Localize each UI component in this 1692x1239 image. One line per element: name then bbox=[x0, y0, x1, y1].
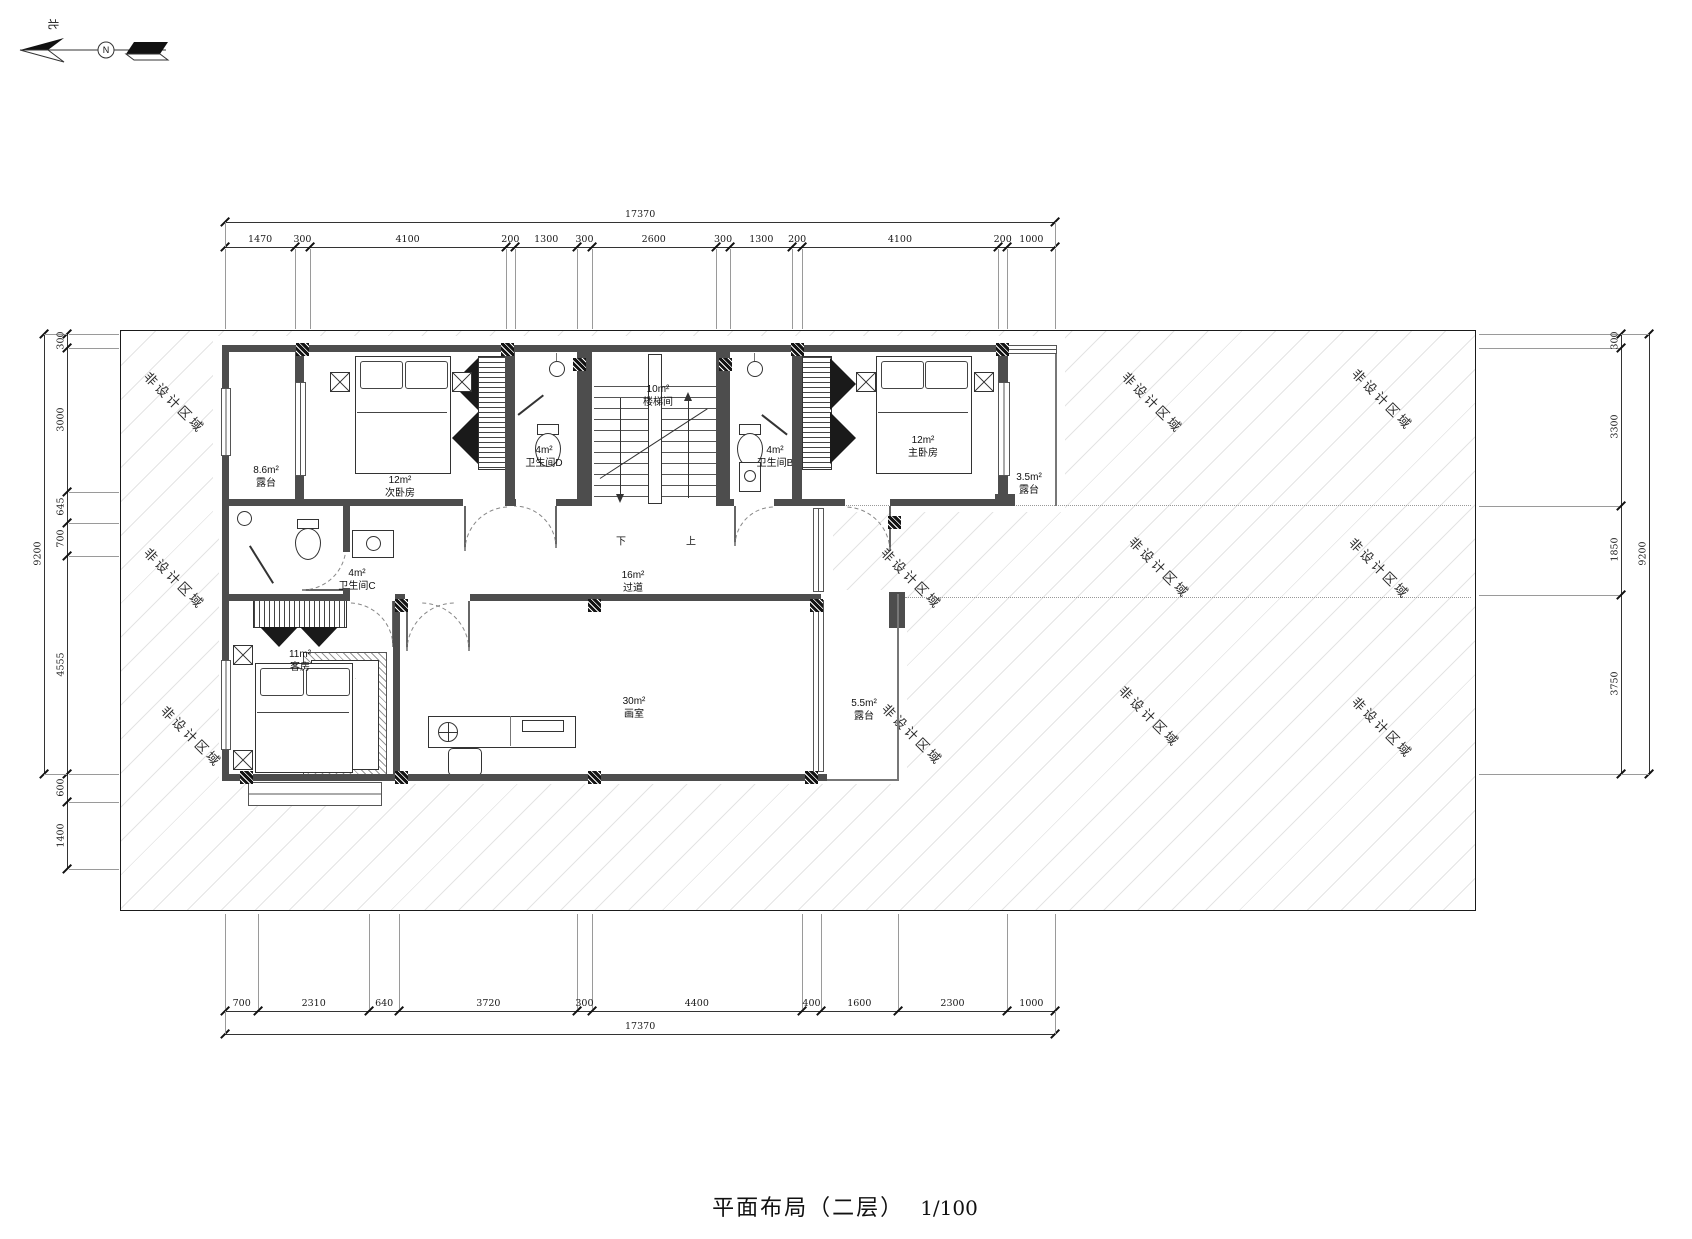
wall bbox=[510, 499, 516, 506]
extension-line bbox=[515, 249, 516, 329]
wall bbox=[716, 499, 734, 506]
room-name: 客房 bbox=[289, 661, 311, 674]
extension-line bbox=[592, 914, 593, 1009]
column-icon bbox=[791, 343, 804, 356]
room-area: 11m² bbox=[289, 648, 311, 661]
extension-line bbox=[258, 914, 259, 1009]
dimension-label: 2310 bbox=[289, 998, 339, 1009]
room-name: 楼梯间 bbox=[643, 396, 673, 409]
window bbox=[998, 382, 1010, 476]
window bbox=[221, 388, 231, 456]
north-arrow-icon: N bbox=[14, 10, 184, 70]
column-icon bbox=[719, 358, 732, 371]
laptop-icon bbox=[522, 720, 564, 732]
north-label: 北 bbox=[46, 19, 62, 30]
pillow bbox=[306, 668, 350, 696]
nightstand-icon bbox=[233, 750, 253, 770]
extension-line bbox=[1479, 506, 1619, 507]
sink-icon bbox=[366, 536, 381, 551]
column-icon bbox=[810, 599, 823, 612]
room-label-guest-room: 11m²客房 bbox=[289, 648, 311, 674]
dimension-label: 4400 bbox=[672, 998, 722, 1009]
faucet-icon bbox=[556, 353, 557, 361]
room-name: 露台 bbox=[1016, 484, 1042, 497]
dimension-line bbox=[225, 1011, 1055, 1012]
dimension-label: 600 bbox=[56, 763, 67, 813]
wardrobe-door-icon bbox=[300, 627, 338, 647]
extension-line bbox=[69, 556, 119, 557]
window bbox=[813, 508, 824, 592]
room-area: 4m² bbox=[525, 444, 562, 457]
room-area: 3.5m² bbox=[1016, 471, 1042, 484]
extension-line bbox=[506, 249, 507, 329]
wall bbox=[556, 499, 592, 506]
extension-line bbox=[225, 1011, 226, 1034]
stair-arrow-line bbox=[688, 398, 689, 498]
extension-line bbox=[69, 869, 119, 870]
column-icon bbox=[588, 771, 601, 784]
dimension-label: 700 bbox=[217, 998, 267, 1009]
extension-line bbox=[1007, 914, 1008, 1009]
extension-line bbox=[1055, 249, 1056, 329]
stair-arrow-up-icon bbox=[684, 392, 692, 401]
wardrobe-door-icon bbox=[830, 412, 856, 464]
wall bbox=[995, 494, 1015, 506]
terrace-edge-line bbox=[827, 779, 899, 781]
room-area: 10m² bbox=[643, 383, 673, 396]
extension-line bbox=[802, 914, 803, 1009]
dimension-line bbox=[225, 247, 1055, 248]
nightstand-icon bbox=[330, 372, 350, 392]
dimension-label: 3000 bbox=[56, 395, 67, 445]
extension-line bbox=[1055, 1011, 1056, 1034]
dimension-label: 300 bbox=[56, 316, 67, 366]
stair-arrow-down-icon bbox=[616, 494, 624, 503]
window bbox=[221, 660, 231, 750]
wardrobe bbox=[802, 356, 832, 470]
window bbox=[248, 782, 382, 806]
room-area: 12m² bbox=[908, 434, 938, 447]
wall bbox=[792, 345, 802, 506]
terrace-edge-line bbox=[897, 594, 899, 781]
dimension-total-label: 17370 bbox=[615, 209, 665, 220]
dimension-total-line bbox=[225, 222, 1055, 223]
column-icon bbox=[395, 599, 408, 612]
extension-line bbox=[1621, 334, 1649, 335]
wall bbox=[890, 499, 1012, 506]
stair-divider bbox=[648, 354, 662, 504]
dimension-label: 4555 bbox=[56, 639, 67, 689]
extension-line bbox=[310, 249, 311, 329]
dimension-label: 1000 bbox=[1006, 998, 1056, 1009]
extension-line bbox=[1479, 595, 1619, 596]
floor-plan-canvas: 北 N bbox=[0, 0, 1692, 1239]
drawing-scale: 1/100 bbox=[920, 1196, 978, 1220]
room-label-bedroom2: 12m²次卧房 bbox=[385, 474, 415, 500]
room-label-bath-d: 4m²卫生间D bbox=[525, 444, 562, 470]
extension-line bbox=[225, 914, 226, 1009]
dimension-label: 4100 bbox=[875, 234, 925, 245]
desk-lamp-icon bbox=[438, 722, 458, 742]
dimension-label: 3720 bbox=[463, 998, 513, 1009]
chair bbox=[448, 748, 482, 776]
wall bbox=[222, 594, 350, 601]
sink-icon bbox=[747, 361, 763, 377]
dimension-label: 1400 bbox=[56, 810, 67, 860]
room-label-studio: 30m²画室 bbox=[623, 695, 646, 721]
wall bbox=[470, 594, 821, 601]
room-area: 12m² bbox=[385, 474, 415, 487]
extension-line bbox=[898, 914, 899, 1009]
dimension-line bbox=[67, 334, 68, 869]
extension-line bbox=[592, 249, 593, 329]
extension-line bbox=[295, 249, 296, 329]
wardrobe bbox=[253, 600, 347, 628]
column-icon bbox=[501, 343, 514, 356]
wall bbox=[774, 499, 845, 506]
extension-line bbox=[69, 492, 119, 493]
room-area: 4m² bbox=[757, 444, 794, 457]
terrace-edge-line bbox=[1055, 345, 1057, 506]
room-label-bath-b: 4m²卫生间B bbox=[757, 444, 794, 470]
extension-line bbox=[69, 774, 119, 775]
column-icon bbox=[395, 771, 408, 784]
window bbox=[295, 382, 306, 476]
dimension-label: 400 bbox=[787, 998, 837, 1009]
room-label-terrace-east: 3.5m²露台 bbox=[1016, 471, 1042, 497]
nightstand-icon bbox=[233, 645, 253, 665]
dimension-total-label: 9200 bbox=[33, 528, 44, 578]
column-icon bbox=[805, 771, 818, 784]
wall bbox=[343, 506, 350, 552]
wall bbox=[505, 345, 515, 506]
room-label-terrace-west: 8.6m²露台 bbox=[253, 464, 279, 490]
room-name: 画室 bbox=[623, 708, 646, 721]
wardrobe-door-icon bbox=[260, 627, 298, 647]
north-letter: N bbox=[103, 45, 110, 55]
stair-arrow-line bbox=[620, 398, 621, 498]
extension-line bbox=[1621, 774, 1649, 775]
pillow bbox=[405, 361, 448, 389]
dimension-label: 4100 bbox=[383, 234, 433, 245]
extension-line bbox=[225, 222, 226, 247]
room-label-master-bedroom: 12m²主卧房 bbox=[908, 434, 938, 460]
dimension-label: 1850 bbox=[1610, 525, 1621, 575]
column-icon bbox=[573, 358, 586, 371]
extension-line bbox=[716, 249, 717, 329]
nightstand-icon bbox=[974, 372, 994, 392]
column-icon bbox=[240, 771, 253, 784]
dimension-label: 300 bbox=[277, 234, 327, 245]
stair-up-label: 上 bbox=[686, 533, 696, 548]
title-block: 平面布局（二层）1/100 bbox=[712, 1190, 978, 1222]
door-swing bbox=[349, 601, 395, 649]
dimension-label: 300 bbox=[1610, 316, 1621, 366]
column-icon bbox=[996, 343, 1009, 356]
dimension-label: 3750 bbox=[1610, 659, 1621, 709]
wall bbox=[222, 499, 463, 506]
room-label-terrace-south: 5.5m²露台 bbox=[851, 697, 877, 723]
pillow bbox=[360, 361, 403, 389]
extension-line bbox=[69, 348, 119, 349]
dimension-label: 300 bbox=[559, 234, 609, 245]
extension-line bbox=[369, 914, 370, 1009]
dimension-total-line bbox=[225, 1034, 1055, 1035]
dimension-total-line bbox=[1649, 334, 1650, 774]
stair-flight-left bbox=[594, 386, 648, 504]
column-icon bbox=[296, 343, 309, 356]
wardrobe-door-icon bbox=[830, 358, 856, 410]
extension-line bbox=[1479, 348, 1619, 349]
blanket-line bbox=[357, 412, 447, 413]
room-area: 16m² bbox=[622, 569, 645, 582]
door-swing bbox=[512, 506, 558, 550]
window bbox=[813, 600, 824, 772]
drawing-title: 平面布局（二层） bbox=[712, 1196, 904, 1221]
extension-line bbox=[577, 249, 578, 329]
room-name: 露台 bbox=[253, 477, 279, 490]
shower-icon bbox=[237, 511, 252, 526]
extension-line bbox=[792, 249, 793, 329]
room-name: 卫生间B bbox=[757, 457, 794, 470]
dimension-label: 2300 bbox=[928, 998, 978, 1009]
wall bbox=[222, 774, 827, 781]
wardrobe bbox=[478, 356, 508, 470]
room-area: 5.5m² bbox=[851, 697, 877, 710]
extension-line bbox=[821, 914, 822, 1009]
bidet-bowl bbox=[744, 470, 756, 482]
extension-line bbox=[225, 249, 226, 329]
room-label-corridor: 16m²过道 bbox=[622, 569, 645, 595]
dimension-label: 640 bbox=[359, 998, 409, 1009]
nightstand-icon bbox=[856, 372, 876, 392]
extension-line bbox=[998, 249, 999, 329]
extension-line bbox=[577, 914, 578, 1009]
extension-line bbox=[1479, 334, 1619, 335]
dimension-line bbox=[1621, 334, 1622, 774]
column-icon bbox=[888, 516, 901, 529]
door-swing bbox=[464, 506, 512, 554]
dimension-label: 3300 bbox=[1610, 402, 1621, 452]
dimension-label: 700 bbox=[56, 514, 67, 564]
extension-line bbox=[399, 914, 400, 1009]
double-door-swing bbox=[405, 601, 471, 657]
extension-line bbox=[1479, 774, 1619, 775]
faucet-icon bbox=[754, 353, 755, 361]
wall bbox=[393, 601, 400, 781]
dimension-label: 1600 bbox=[834, 998, 884, 1009]
column-icon bbox=[588, 599, 601, 612]
room-name: 露台 bbox=[851, 710, 877, 723]
room-name: 卫生间D bbox=[525, 457, 562, 470]
extension-line bbox=[1007, 249, 1008, 329]
reference-dotted-line bbox=[905, 597, 1471, 598]
room-area: 4m² bbox=[338, 567, 375, 580]
dimension-total-label: 17370 bbox=[615, 1021, 665, 1032]
dimension-total-line bbox=[44, 334, 45, 774]
nightstand-icon bbox=[452, 372, 472, 392]
north-indicator: 北 N bbox=[14, 10, 184, 70]
wardrobe-door-icon bbox=[452, 412, 478, 464]
extension-line bbox=[69, 802, 119, 803]
dimension-label: 2600 bbox=[629, 234, 679, 245]
blanket-line bbox=[257, 712, 349, 713]
dimension-label: 200 bbox=[772, 234, 822, 245]
wall bbox=[222, 345, 1012, 352]
room-area: 30m² bbox=[623, 695, 646, 708]
desk-divider bbox=[510, 716, 511, 746]
door-swing bbox=[734, 506, 776, 548]
extension-line bbox=[69, 334, 119, 335]
dimension-label: 300 bbox=[559, 998, 609, 1009]
window bbox=[1007, 345, 1057, 354]
extension-line bbox=[730, 249, 731, 329]
pillow bbox=[881, 361, 924, 389]
sink-icon bbox=[549, 361, 565, 377]
extension-line bbox=[1055, 914, 1056, 1009]
pillow bbox=[925, 361, 968, 389]
dimension-total-label: 9200 bbox=[1638, 528, 1649, 578]
blanket-line bbox=[878, 412, 968, 413]
room-label-stairwell: 10m²楼梯间 bbox=[643, 383, 673, 409]
room-area: 8.6m² bbox=[253, 464, 279, 477]
dimension-label: 1000 bbox=[1006, 234, 1056, 245]
stair-down-label: 下 bbox=[616, 533, 626, 548]
extension-line bbox=[802, 249, 803, 329]
extension-line bbox=[69, 523, 119, 524]
room-name: 主卧房 bbox=[908, 447, 938, 460]
